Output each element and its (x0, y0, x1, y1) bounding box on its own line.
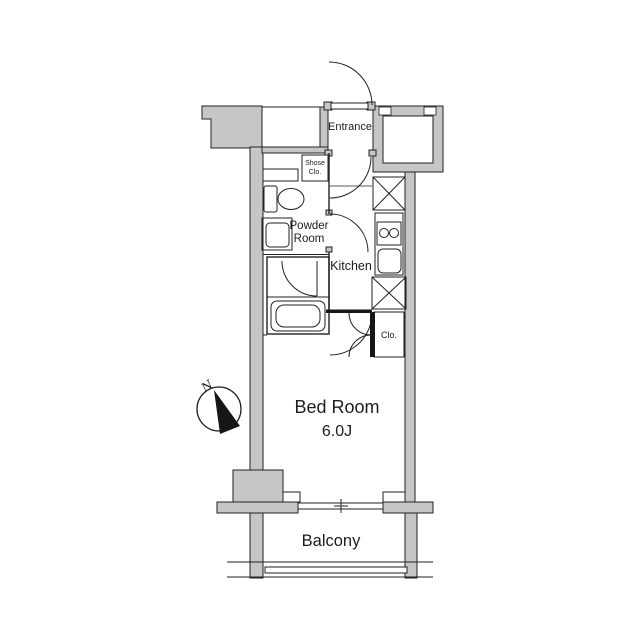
closet-back-edge (370, 312, 375, 357)
toilet-bowl-icon (278, 189, 304, 210)
wall-top-left (202, 106, 262, 148)
wall-entrance-left (320, 107, 328, 153)
powder-room-label-2: Room (294, 233, 325, 245)
wall-bottom-right (383, 502, 433, 513)
stove-burner-right (390, 229, 399, 238)
toilet-tank-icon (264, 186, 277, 212)
closet-door-arc-bottom (349, 335, 371, 357)
bedroom-door-header (326, 310, 372, 314)
kitchen-label: Kitchen (330, 259, 372, 273)
meter-box-room (262, 107, 320, 147)
shoe-shelf (263, 169, 298, 181)
window-return-left (283, 492, 300, 502)
wall-bottom-left (217, 502, 298, 513)
wall-under-room (262, 147, 328, 153)
shaft-notch-right (424, 107, 436, 115)
wall-balcony-left (250, 513, 263, 578)
north-label: N (198, 377, 216, 395)
shoes-closet-box (302, 155, 328, 181)
pipe-space-lower (372, 277, 406, 309)
wall-pillar-sw (233, 470, 283, 503)
shaft-inner (383, 116, 433, 163)
wall-right (405, 172, 415, 502)
powder-room-label-1: Powder (290, 220, 329, 232)
washbasin-bowl (266, 223, 289, 247)
closet-label: Clo. (381, 330, 397, 340)
pipe-space-upper (373, 177, 405, 210)
window-return-right (383, 492, 405, 502)
bedroom-size-label: 6.0J (322, 423, 352, 440)
wall-left (250, 147, 263, 471)
shaft-notch-left (379, 107, 391, 115)
powder-door-arc (330, 214, 368, 252)
compass-needle-icon (214, 390, 240, 434)
entrance-label: Entrance (328, 121, 372, 133)
stove-icon (377, 222, 401, 245)
balcony-railing (265, 567, 407, 573)
stove-burner-left (380, 229, 389, 238)
jamb-hall-r (369, 150, 376, 156)
jamb-powder-bottom (326, 247, 332, 252)
entrance-door-leaf (331, 103, 368, 109)
sink-icon (378, 249, 401, 273)
bath-door-arc (282, 261, 317, 296)
window-slider (298, 499, 383, 513)
bedroom-label: Bed Room (294, 397, 379, 417)
bathtub-inner (276, 305, 320, 327)
balcony-label: Balcony (302, 532, 361, 550)
shoes-closet-label-2: Clo. (309, 169, 322, 176)
floor-plan: Entrance Shose Clo. Powder Room Kitchen … (0, 0, 640, 640)
shoes-closet-label-1: Shose (305, 160, 325, 167)
entrance-door-arc (329, 62, 372, 105)
hall-door-arc (330, 157, 371, 198)
